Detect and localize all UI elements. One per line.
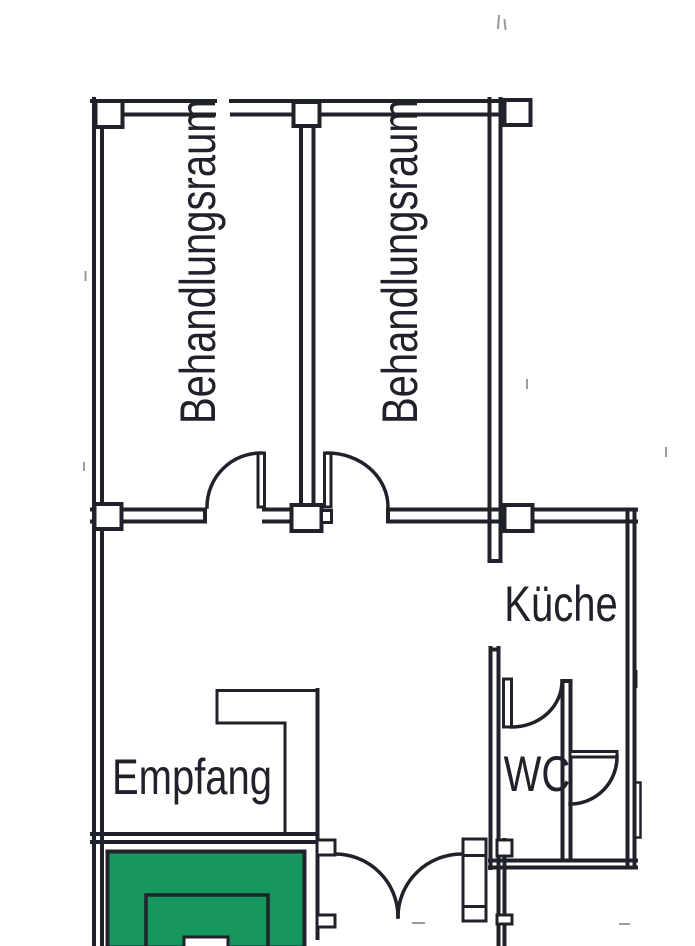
wall-kitchen-right [628,510,635,867]
pillar-top-right [505,100,531,125]
reception-desk-notch [184,937,228,946]
wall-bottom-reception [92,834,317,842]
room-label-wc: WC [477,749,597,799]
entrance-frame-left-top [317,840,335,855]
entrance-frame-right2-top [497,840,512,856]
floor-plan: Behandlungsraum Behandlungsraum Küche Em… [0,0,695,946]
reception-desk-top [108,852,305,946]
wall-middle-vertical [301,115,314,506]
speck [505,20,506,29]
entrance-frame-right2-bottom [497,915,512,924]
entrance-door-arc-left [335,854,398,917]
reception-desk [108,852,305,946]
entrance-door-arc-right [398,854,462,917]
wall-mid-horizontal [92,510,636,522]
room-label-behandlungsraum-1: Behandlungsraum [173,152,223,424]
entrance-frame-left-bottom [317,915,335,927]
pillar-mid-left [95,504,122,529]
pillar-top-middle [294,102,320,126]
entrance-frame-right [463,839,486,921]
pillar-top-left [96,101,123,127]
pillar-mid-middle-nub [322,511,332,523]
room-label-kueche: Küche [481,579,641,629]
door-leaf-treatment-2 [325,453,332,507]
door-leaf-treatment-1 [258,453,265,507]
speck [498,16,499,28]
door-leaf-wc-top [504,679,512,727]
door-arc-treatment-2 [328,453,389,507]
room-label-behandlungsraum-2: Behandlungsraum [375,152,425,424]
wall-right-vertical [490,99,501,561]
floor-plan-canvas [0,0,695,946]
entrance-door-frames [317,839,512,927]
room-label-empfang: Empfang [92,752,292,802]
pillar-mid-middle [292,505,322,531]
door-arc-treatment-1 [207,453,261,507]
door-arc-wc-top [512,681,563,727]
pillar-mid-right [505,505,533,531]
